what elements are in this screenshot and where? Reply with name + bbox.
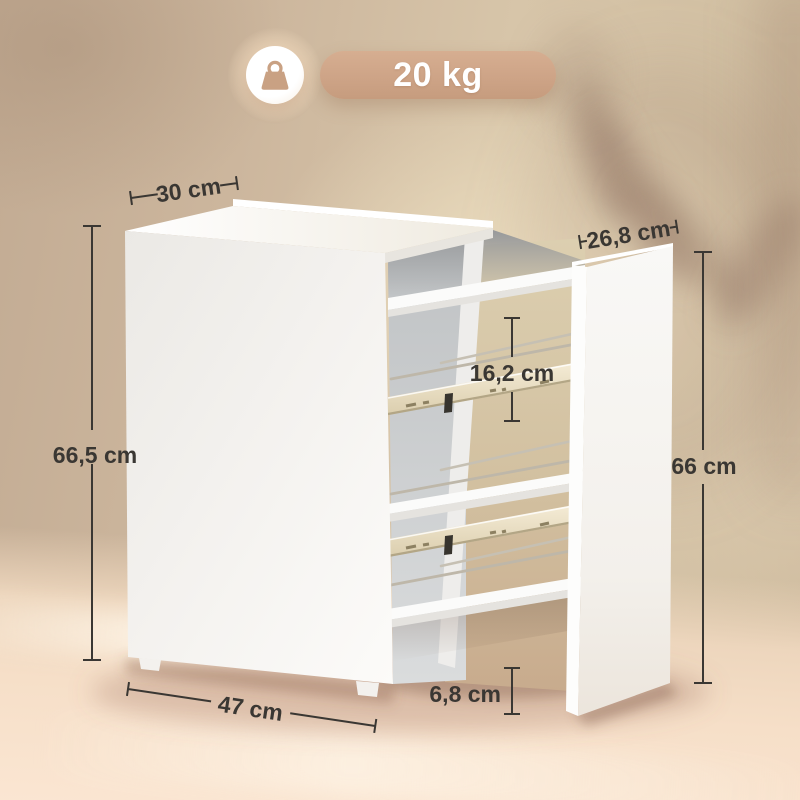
- product-image: 66,5 cm 66 cm 16,2 cm 6,8 cm 30 cm: [0, 0, 800, 800]
- panel-front-face: [578, 246, 673, 716]
- cabinet-foot: [139, 658, 161, 671]
- weight-capacity-label: 20 kg: [393, 56, 482, 95]
- cabinet-foot: [356, 681, 379, 697]
- dimension-right-height: 66 cm: [671, 252, 736, 683]
- weight-badge-circle: [246, 46, 304, 104]
- weight-capacity-badge: 20 kg: [320, 51, 556, 99]
- cabinet-illustration: 66,5 cm 66 cm 16,2 cm 6,8 cm 30 cm: [0, 0, 800, 800]
- dimension-label: 30 cm: [154, 173, 222, 208]
- dimension-label: 6,8 cm: [429, 681, 501, 707]
- dimension-label: 66,5 cm: [53, 442, 137, 468]
- cabinet-front-face: [125, 231, 393, 684]
- dimension-top-depth: 30 cm: [129, 170, 239, 211]
- dimension-label: 16,2 cm: [470, 360, 554, 386]
- dimension-label: 66 cm: [671, 453, 736, 479]
- pullout-front-panel: [566, 243, 673, 716]
- slide-stop: [444, 535, 453, 555]
- slide-stop: [444, 393, 453, 413]
- weight-icon: [256, 56, 294, 94]
- dimension-left-height: 66,5 cm: [53, 226, 137, 660]
